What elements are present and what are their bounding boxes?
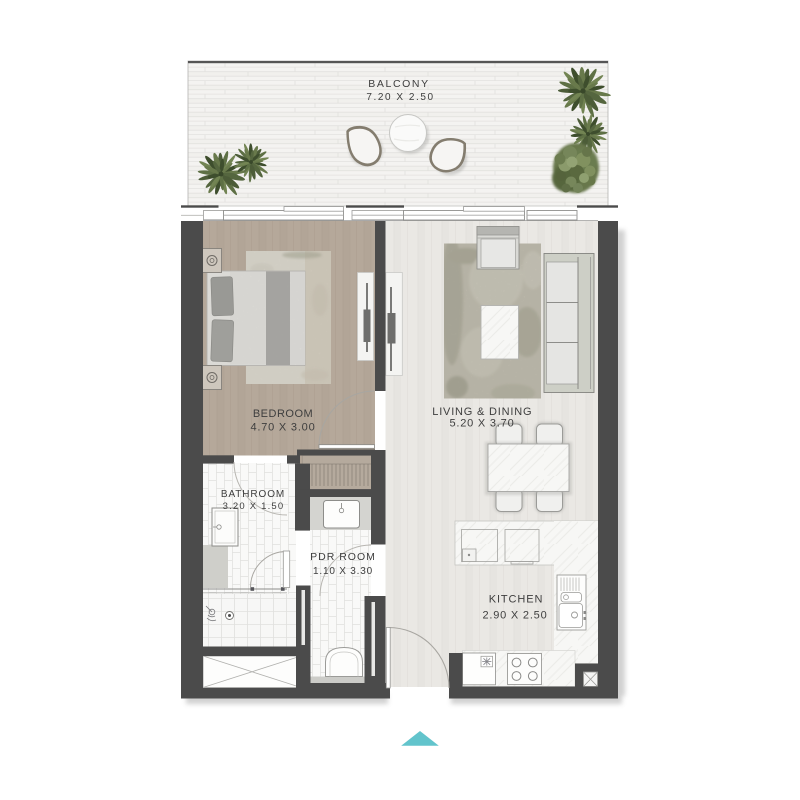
svg-text:3.20 X 1.50: 3.20 X 1.50 (223, 501, 285, 512)
svg-text:BALCONY: BALCONY (368, 78, 429, 90)
svg-text:4.70 X 3.00: 4.70 X 3.00 (250, 422, 315, 434)
svg-text:7.20 X 2.50: 7.20 X 2.50 (366, 92, 434, 103)
svg-text:PDR ROOM: PDR ROOM (310, 551, 376, 563)
svg-text:1.10 X 3.30: 1.10 X 3.30 (313, 566, 373, 577)
svg-text:KITCHEN: KITCHEN (489, 594, 544, 606)
svg-text:BEDROOM: BEDROOM (253, 408, 313, 420)
svg-text:BATHROOM: BATHROOM (221, 489, 285, 500)
svg-text:5.20 X 3.70: 5.20 X 3.70 (449, 418, 514, 430)
svg-text:LIVING & DINING: LIVING & DINING (432, 406, 532, 418)
svg-text:2.90 X 2.50: 2.90 X 2.50 (482, 610, 547, 622)
